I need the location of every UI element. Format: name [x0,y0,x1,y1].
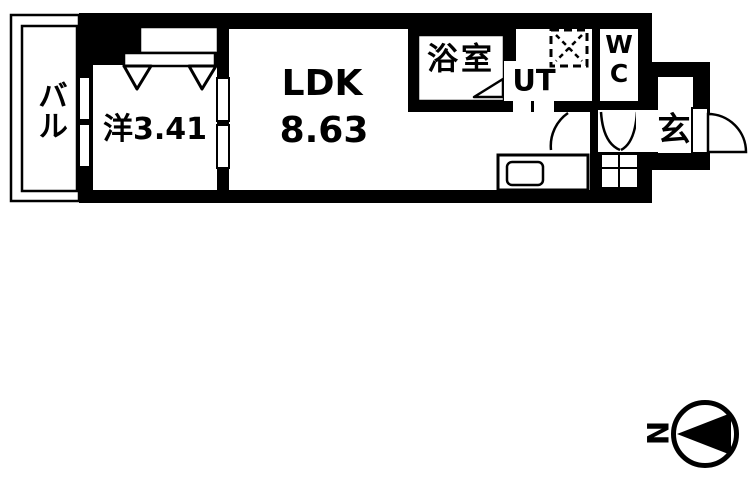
floor-plan: バル 洋3.41 LDK 8.63 浴室 UT WC 玄 N [0,0,750,480]
compass-north-label: N [645,421,674,445]
ldk-area-label: 8.63 [280,113,369,149]
washing-machine-icon [551,30,587,66]
toilet-label: WC [607,30,632,88]
floor-plan-drawing [0,0,750,480]
front-door-arc-icon [708,114,746,152]
front-door-leaf-icon [692,108,708,153]
utility-label: UT [512,67,555,96]
kitchen-counter [498,155,588,190]
balcony-label: バル [34,80,64,140]
bathroom-label: 浴室 [427,45,495,76]
entrance-label: 玄 [658,113,691,146]
western-room-label: 洋3.41 [103,115,207,145]
hall-entrance-opening [636,110,660,152]
kitchen-sink-icon [507,162,543,185]
ldk-label: LDK [282,66,363,102]
compass-icon [674,403,737,466]
